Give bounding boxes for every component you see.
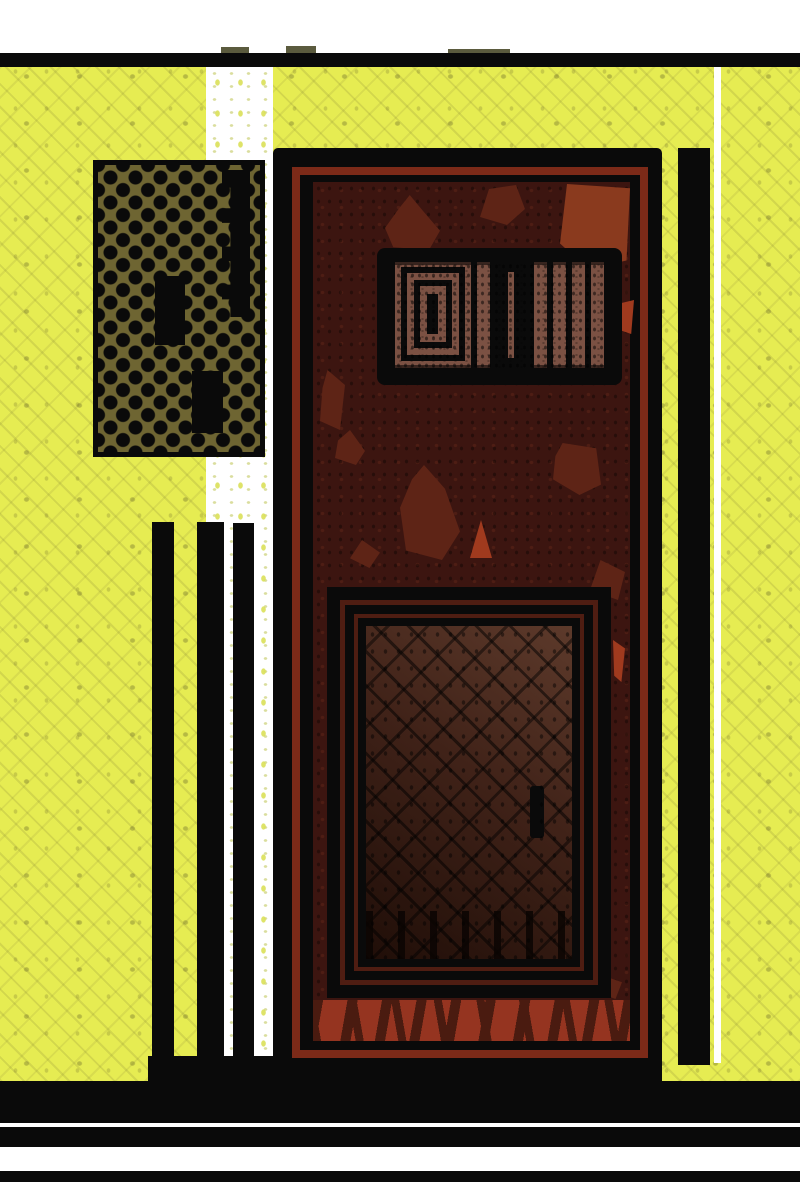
paint-blotch <box>320 370 345 430</box>
stripe-base-fill <box>148 1056 275 1081</box>
paint-blotch <box>620 300 634 334</box>
halftone-panel-bar <box>222 170 250 317</box>
panel-window-interior <box>366 626 572 959</box>
panel-frame-outer <box>327 587 611 998</box>
white-stripe-right <box>714 67 721 1063</box>
paint-blotch <box>350 540 380 568</box>
comic-panel <box>0 0 800 1200</box>
paint-blotch <box>553 443 601 495</box>
paint-blotch <box>613 640 625 682</box>
halftone-panel <box>93 160 265 457</box>
paint-blotch <box>335 430 365 465</box>
door-surface <box>300 175 640 1050</box>
door-kickplate-band <box>313 1000 630 1041</box>
paint-blotch <box>400 465 460 560</box>
left-stripe-3 <box>233 523 254 1081</box>
panel-frame-gap <box>340 600 598 985</box>
paint-blotch <box>470 520 492 558</box>
halftone-panel-bar <box>192 371 223 433</box>
panel-frame-middle <box>345 605 593 980</box>
panel-frame-inner <box>358 618 580 967</box>
left-stripe-1 <box>152 522 174 1081</box>
panel-frame-gap <box>354 614 584 971</box>
top-black-bar <box>0 53 800 67</box>
floor-band-2 <box>0 1127 800 1147</box>
lower-window-panel <box>327 587 611 998</box>
paint-blotch <box>480 185 525 225</box>
floor-band-1 <box>0 1081 800 1123</box>
panel-texture <box>366 626 572 959</box>
halftone-panel-bar <box>155 276 185 345</box>
paint-blotch <box>385 195 440 250</box>
floor-band-3 <box>0 1171 800 1182</box>
left-stripe-2 <box>197 522 224 1081</box>
grate-texture <box>395 262 604 368</box>
vent-grate-opening <box>395 262 604 368</box>
vent-grate <box>377 248 622 385</box>
right-stripe <box>678 148 710 1065</box>
